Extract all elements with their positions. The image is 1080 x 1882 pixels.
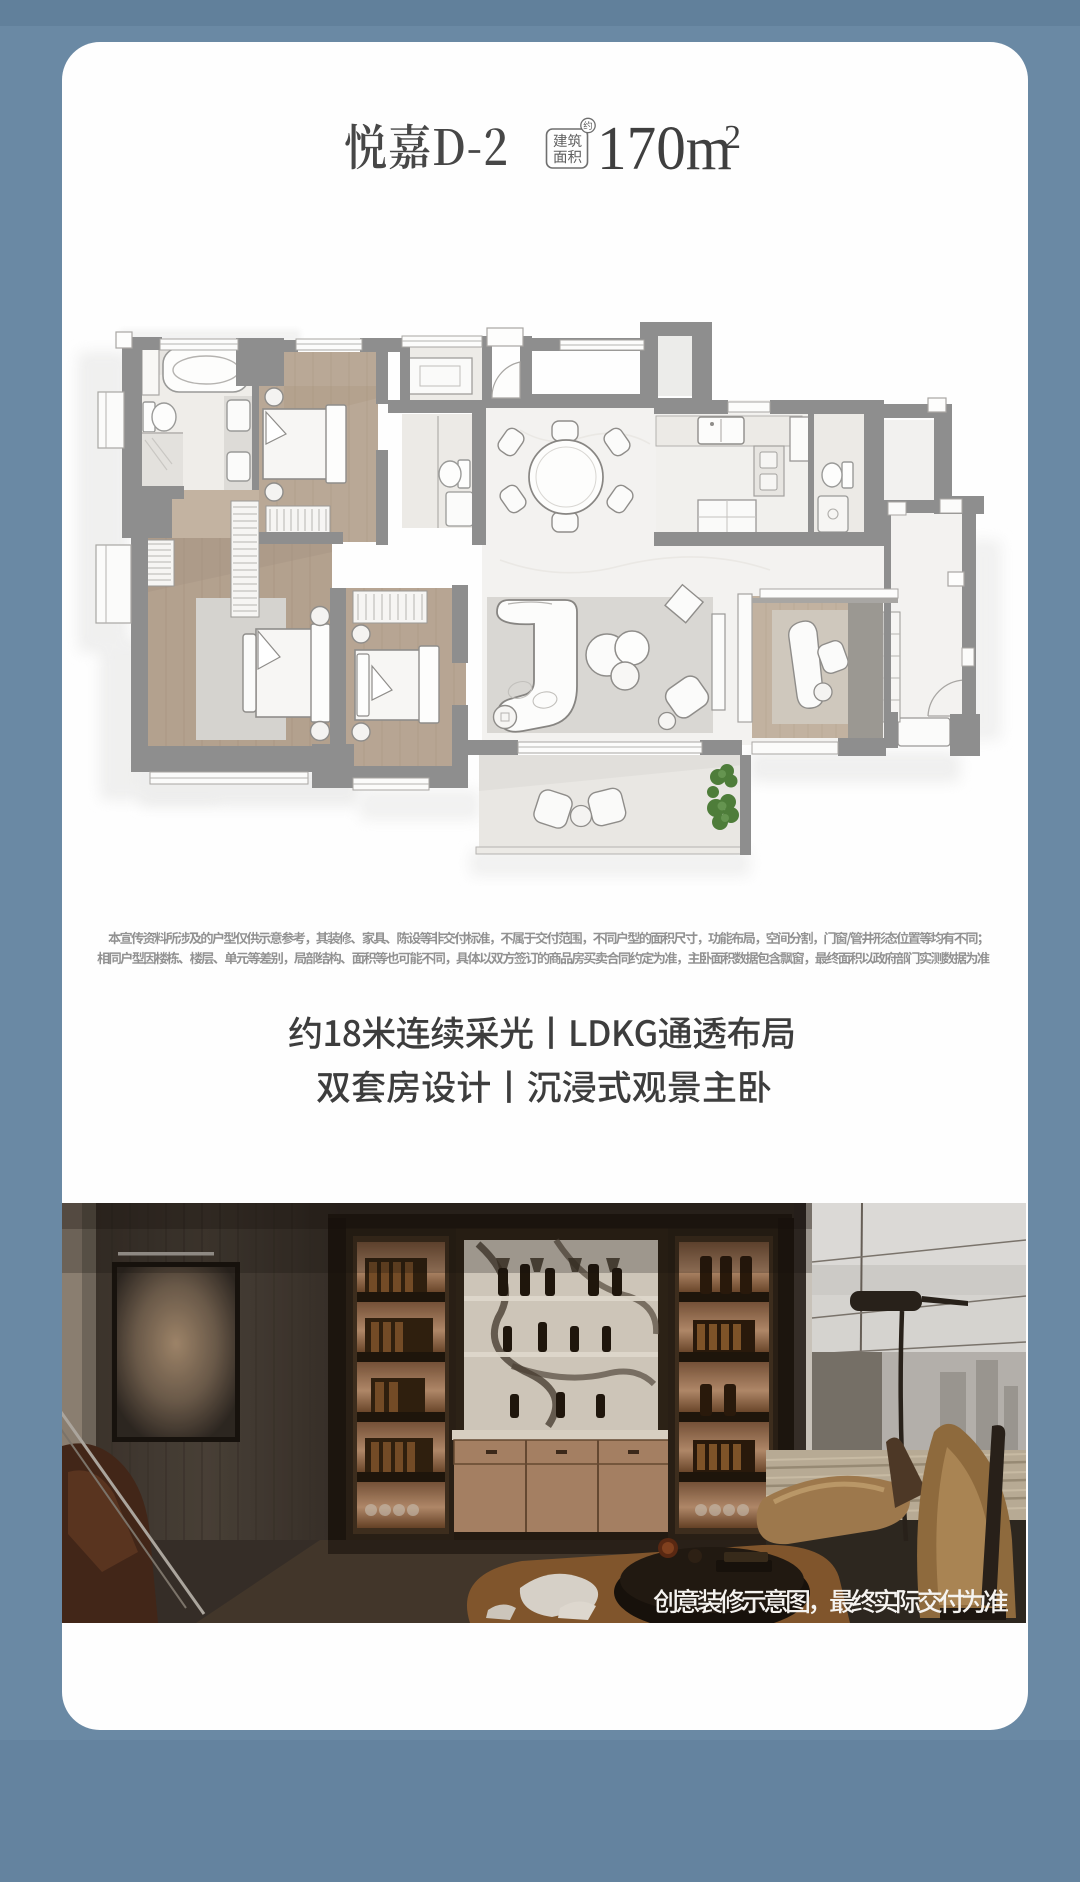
svg-text:2: 2 (724, 119, 741, 156)
svg-text:170m: 170m (597, 114, 732, 183)
